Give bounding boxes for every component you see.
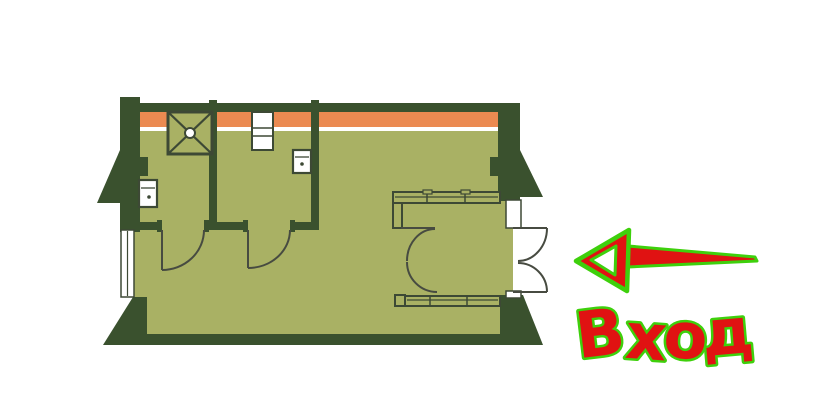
sink-icon <box>293 150 311 173</box>
wardrobe-counter-bottom <box>395 295 500 306</box>
right-wall <box>498 103 520 201</box>
floor-plan-page: Вход <box>0 0 820 400</box>
left-wall <box>120 97 140 232</box>
corridor-wall-segment <box>204 222 248 230</box>
floor-plan-image: Вход <box>0 0 820 400</box>
window <box>121 230 134 297</box>
left-pilaster <box>140 157 148 176</box>
shower-icon <box>168 112 212 154</box>
partition-wall-b <box>311 100 319 230</box>
right-pilaster <box>490 157 498 176</box>
sink-icon <box>139 180 157 207</box>
entrance-jamb-top <box>506 200 521 228</box>
entrance-label: Вход <box>571 293 753 378</box>
entrance-threshold <box>506 228 513 292</box>
cabinet-icon <box>252 112 273 150</box>
